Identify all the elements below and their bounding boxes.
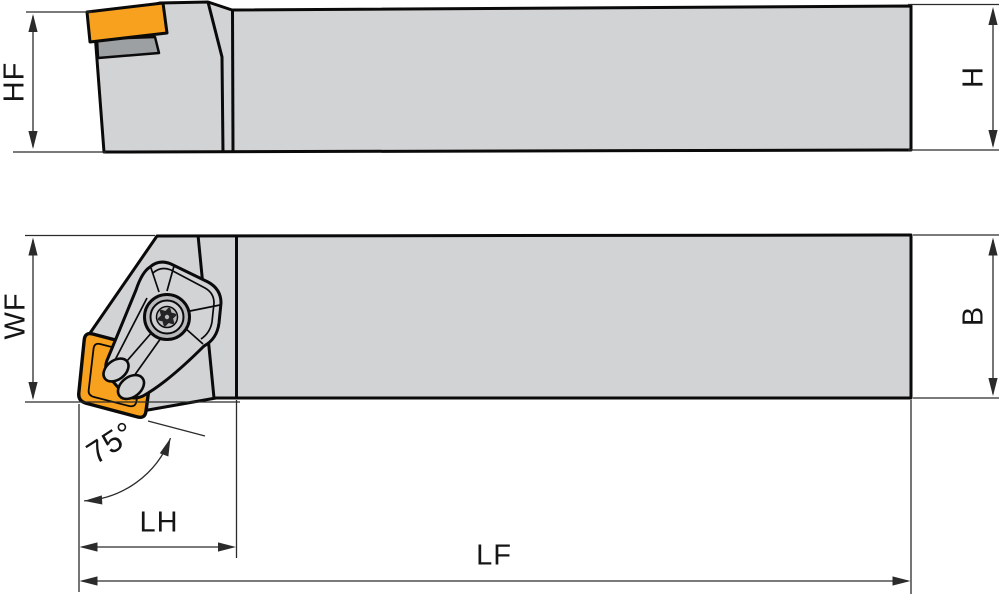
arrowhead <box>893 576 911 585</box>
top-view <box>25 235 999 594</box>
clamp-screw <box>145 295 190 340</box>
arrowhead <box>160 436 175 456</box>
drawing-canvas: HF H WF B 75° LH LF <box>0 0 1000 596</box>
side-view <box>13 2 999 152</box>
neck-line-b <box>233 10 234 151</box>
dim-label-lh: LH <box>139 507 178 540</box>
arrowhead <box>988 378 997 396</box>
arrowhead <box>218 542 236 551</box>
arrowhead <box>988 130 997 148</box>
arrowhead <box>28 382 37 400</box>
dim-label-lf: LF <box>476 540 512 573</box>
arrowhead <box>28 238 37 256</box>
arrowhead <box>28 14 37 32</box>
arrowhead <box>80 576 98 585</box>
dim-label-h: H <box>958 66 991 88</box>
dim-label-b: B <box>958 306 991 326</box>
arrowhead <box>988 238 997 256</box>
cutting-edge-extension-line <box>148 421 205 436</box>
dim-label-hf: HF <box>0 62 32 103</box>
holder-body-side <box>94 2 911 152</box>
dim-label-wf: WF <box>0 292 33 339</box>
arrowhead <box>28 131 37 149</box>
arrowhead <box>988 7 997 25</box>
arrowhead <box>84 495 102 505</box>
screw-center-dot <box>165 315 169 319</box>
arrowhead <box>80 542 98 551</box>
